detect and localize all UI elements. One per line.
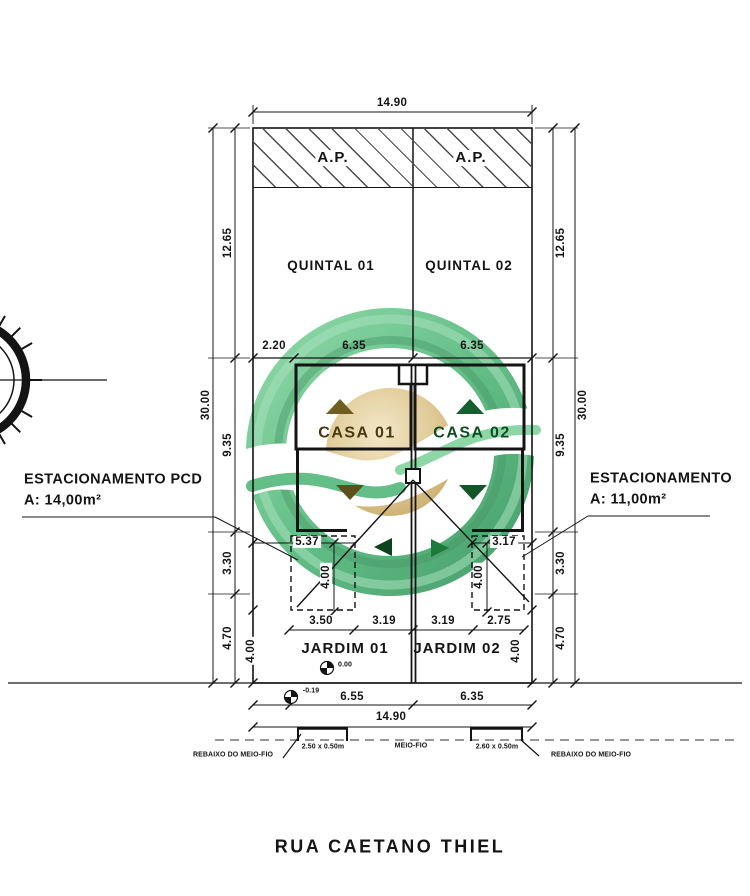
dim-parking-left-depth: 4.00 <box>320 563 332 591</box>
dim-jardim-left-depth: 4.00 <box>245 637 257 665</box>
dim-right-1: 12.65 <box>555 228 567 258</box>
curb-label: MEIO-FIO <box>393 742 430 749</box>
dim-mid-3: 6.35 <box>460 340 484 352</box>
dim-parking-left-width: 5.37 <box>293 536 321 548</box>
dim-bottom-width: 14.90 <box>374 711 408 723</box>
street-name: RUA CAETANO THIEL <box>275 838 506 857</box>
dim-left-1: 12.65 <box>222 228 234 258</box>
dim-parking-right-width: 3.17 <box>490 536 518 548</box>
parking-right-area: A: 11,00m² <box>590 492 667 507</box>
ramp-left-label: 2.50 x 0.50m <box>300 743 346 750</box>
quintal2-label: QUINTAL 02 <box>425 259 513 273</box>
ramp-right-label: 2.60 x 0.50m <box>474 743 520 750</box>
north-compass-icon <box>0 316 107 444</box>
dim-right-3: 3.30 <box>555 551 567 575</box>
dim-right-total: 30.00 <box>577 390 589 420</box>
jardim1-label: JARDIM 01 <box>301 641 388 657</box>
parking-pcd-title: ESTACIONAMENTO PCD <box>24 472 202 487</box>
level-street-label: -0.19 <box>303 687 319 694</box>
casa2-label: CASA 02 <box>433 426 510 443</box>
dim-right-2: 9.35 <box>555 433 567 457</box>
dim-left-total: 30.00 <box>200 390 212 420</box>
quintal1-label: QUINTAL 01 <box>287 259 375 273</box>
site-plan-canvas: A.P. A.P. QUINTAL 01 QUINTAL 02 CASA 01 … <box>0 0 750 896</box>
dim-front-4: 2.75 <box>485 615 513 627</box>
dim-left-3: 3.30 <box>222 551 234 575</box>
parking-right-title: ESTACIONAMENTO <box>590 471 732 486</box>
casa1-label: CASA 01 <box>318 426 395 443</box>
dim-top-width: 14.90 <box>375 97 409 109</box>
permeable-area-hatch <box>253 128 532 188</box>
dim-front-1: 3.50 <box>307 615 335 627</box>
dim-left-4: 4.70 <box>222 626 234 650</box>
dim-left-2: 9.35 <box>222 433 234 457</box>
jardim2-label: JARDIM 02 <box>413 641 500 657</box>
dim-front-3: 3.19 <box>429 615 457 627</box>
level-lot-label: 0.00 <box>338 661 352 668</box>
dim-front-2: 3.19 <box>370 615 398 627</box>
dim-right-4: 4.70 <box>555 626 567 650</box>
dim-mid-2: 6.35 <box>342 340 366 352</box>
dim-parking-right-depth: 4.00 <box>473 563 485 591</box>
dim-street-2: 6.35 <box>458 691 486 703</box>
curb-lowering-right-label: REBAIXO DO MEIO-FIO <box>551 751 631 758</box>
permeable-area-label-left: A.P. <box>315 150 350 166</box>
dim-street-1: 6.55 <box>338 691 366 703</box>
dim-jardim-right-depth: 4.00 <box>510 637 522 665</box>
curb-lowering-left-label: REBAIXO DO MEIO-FIO <box>193 751 273 758</box>
parking-pcd-area: A: 14,00m² <box>24 493 101 508</box>
dim-mid-1: 2.20 <box>262 340 286 352</box>
permeable-area-label-right: A.P. <box>453 150 488 166</box>
